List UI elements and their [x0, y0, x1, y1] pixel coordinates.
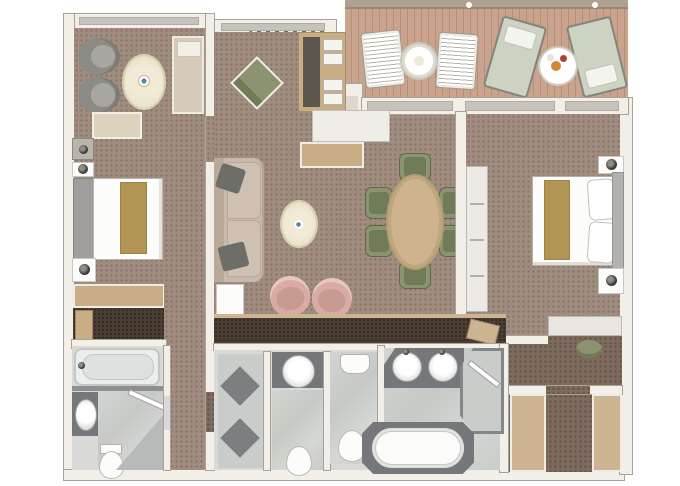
window: [466, 102, 554, 110]
sideboard: [300, 142, 364, 168]
faucet: [403, 349, 409, 355]
bidet: [340, 354, 370, 374]
table-lamp: [79, 264, 90, 275]
railing-post: [592, 2, 598, 8]
table-decor: [294, 220, 303, 229]
bed-headboard: [73, 178, 95, 260]
railing-post: [466, 2, 472, 8]
plate: [547, 54, 554, 61]
faucet: [439, 349, 445, 355]
entry-doorway: [546, 386, 590, 394]
washbasin: [282, 355, 315, 388]
bathtub: [74, 348, 160, 386]
chaise-pillow: [177, 41, 201, 57]
console: [312, 110, 390, 142]
dining-chair-seat: [404, 157, 427, 177]
toilet: [99, 451, 124, 479]
vanity-stool: [576, 340, 602, 358]
armchair-seat: [91, 83, 115, 106]
window: [80, 18, 198, 24]
wardrobe-shelf: [470, 239, 484, 241]
lounger-pillow: [584, 63, 619, 89]
dining-chair-seat: [404, 265, 427, 285]
closet: [510, 394, 546, 472]
wardrobe: [466, 166, 488, 312]
glassware: [323, 53, 343, 65]
guest-corridor-floor: [164, 284, 206, 470]
vase: [139, 76, 149, 86]
wardrobe-shelf: [470, 275, 484, 277]
floor-plan: [0, 0, 680, 486]
cabinet-knob: [79, 145, 88, 154]
food-plate: [551, 61, 561, 71]
table-lamp: [606, 159, 617, 170]
bathtub-faucet: [78, 362, 85, 369]
window: [222, 24, 324, 30]
round-serving-table: [540, 48, 576, 84]
doorway: [206, 116, 214, 162]
doorway: [206, 392, 214, 432]
cabinet: [72, 138, 94, 160]
bathtub-basin: [82, 354, 154, 380]
walk-in-shower: [460, 348, 504, 434]
glassware: [323, 39, 343, 51]
chaise-lounge: [172, 36, 204, 114]
toilet: [286, 446, 312, 476]
bar-shelf: [303, 37, 320, 107]
window: [566, 102, 618, 110]
glassware: [323, 93, 343, 105]
bar-cabinet: [298, 32, 346, 112]
lounger-pillow: [503, 24, 538, 51]
dining-chair-seat: [369, 192, 389, 215]
deck-chair: [361, 30, 404, 88]
bed-headboard: [612, 172, 624, 270]
accent-chair-seat: [317, 288, 346, 314]
deck-chair: [436, 33, 478, 90]
dresser: [73, 284, 165, 308]
accent-chair-seat: [275, 285, 305, 312]
toilet: [338, 430, 366, 462]
wardrobe-shelf: [470, 203, 484, 205]
bathroom-partition: [264, 352, 270, 470]
oval-bathtub: [372, 428, 464, 468]
washbasin: [75, 399, 97, 431]
bench: [92, 112, 142, 139]
dining-table: [388, 176, 442, 268]
dining-chair-seat: [369, 230, 389, 253]
armchair-seat: [91, 45, 115, 69]
veranda-railing: [345, 0, 628, 9]
partition-wall: [456, 112, 466, 336]
washbasin: [428, 352, 458, 382]
washbasin: [392, 352, 422, 382]
bed-runner: [120, 182, 147, 254]
vanity-desk: [548, 316, 622, 336]
closet: [592, 394, 622, 472]
bed-runner: [544, 180, 570, 260]
bathroom-doorway: [164, 396, 170, 430]
table-lamp: [78, 164, 88, 174]
food-plate: [560, 55, 567, 62]
round-lattice-table: [402, 44, 436, 78]
table-lamp: [606, 275, 617, 286]
window: [368, 102, 452, 110]
glassware: [323, 79, 343, 91]
